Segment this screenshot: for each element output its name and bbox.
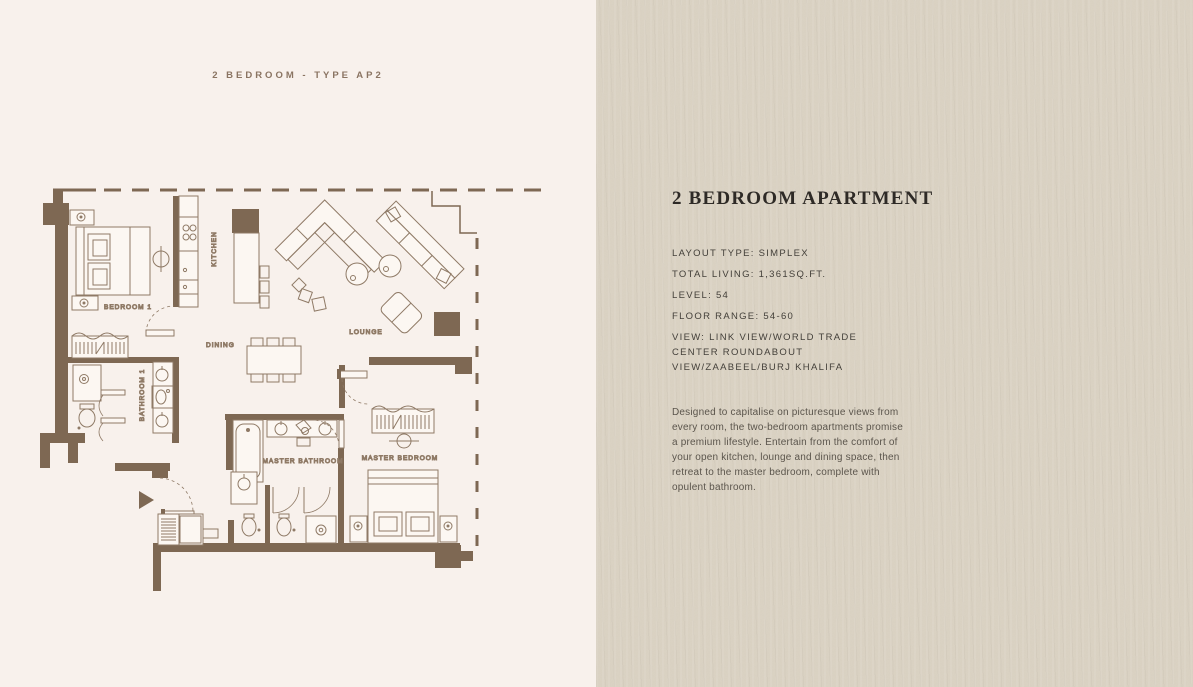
room-master-bathroom: MASTER BATHROOM	[231, 420, 344, 543]
apartment-title: 2 BEDROOM APARTMENT	[672, 188, 972, 210]
svg-text:MASTER BATHROOM: MASTER BATHROOM	[263, 458, 344, 465]
room-bedroom1: BEDROOM 1	[70, 210, 174, 336]
stall-doors	[99, 390, 125, 441]
bed-bedroom1	[76, 227, 150, 295]
entry	[158, 478, 218, 545]
bed-master	[368, 470, 438, 543]
toilet	[78, 404, 95, 429]
basin-unit	[231, 472, 257, 504]
sofa-sectional	[275, 200, 385, 310]
room-dining: DINING	[206, 338, 301, 382]
detail-total-living: TOTAL LIVING: 1,361SQ.FT.	[672, 267, 900, 282]
kitchen-island	[232, 209, 269, 308]
entry-door	[160, 478, 194, 519]
apartment-details: LAYOUT TYPE: SIMPLEX TOTAL LIVING: 1,361…	[672, 246, 972, 375]
floor-plan-drawing: BEDROOM 1	[0, 0, 596, 687]
floor-plan-panel: 2 BEDROOM - TYPE AP2	[0, 0, 596, 687]
stall-doors-master	[273, 487, 330, 513]
shower-master	[306, 516, 336, 543]
info-panel: 2 BEDROOM APARTMENT LAYOUT TYPE: SIMPLEX…	[596, 0, 1193, 687]
room-master-bedroom: MASTER BEDROOM	[350, 406, 457, 543]
vanity-master	[267, 420, 337, 446]
wall-light-icon	[153, 246, 169, 272]
detail-floor-range: FLOOR RANGE: 54-60	[672, 309, 900, 324]
wardrobe-bedroom1	[72, 333, 128, 358]
ceiling-fan-icon	[389, 434, 419, 448]
svg-text:KITCHEN: KITCHEN	[211, 231, 218, 267]
wardrobe-master	[372, 406, 434, 433]
detail-layout-type: LAYOUT TYPE: SIMPLEX	[672, 246, 900, 261]
room-bathroom1: BATHROOM 1	[72, 333, 173, 441]
entry-closet	[158, 514, 218, 545]
ottoman	[379, 290, 424, 335]
room-lounge: LOUNGE	[275, 200, 464, 404]
entry-arrow-icon	[139, 491, 154, 509]
svg-text:DINING: DINING	[206, 342, 235, 349]
apartment-description: Designed to capitalise on picturesque vi…	[672, 405, 904, 495]
detail-level: LEVEL: 54	[672, 288, 900, 303]
detail-view: VIEW: LINK VIEW/WORLD TRADE CENTER ROUND…	[672, 330, 900, 375]
svg-text:MASTER BEDROOM: MASTER BEDROOM	[362, 455, 438, 462]
svg-text:BEDROOM 1: BEDROOM 1	[104, 304, 152, 311]
room-kitchen: KITCHEN	[179, 196, 269, 308]
svg-text:BATHROOM 1: BATHROOM 1	[139, 369, 146, 422]
apartment-info: 2 BEDROOM APARTMENT LAYOUT TYPE: SIMPLEX…	[672, 188, 972, 495]
vanity-bathroom1	[152, 362, 173, 433]
svg-text:LOUNGE: LOUNGE	[349, 329, 382, 336]
brochure-page: 2 BEDROOM - TYPE AP2	[0, 0, 1193, 687]
